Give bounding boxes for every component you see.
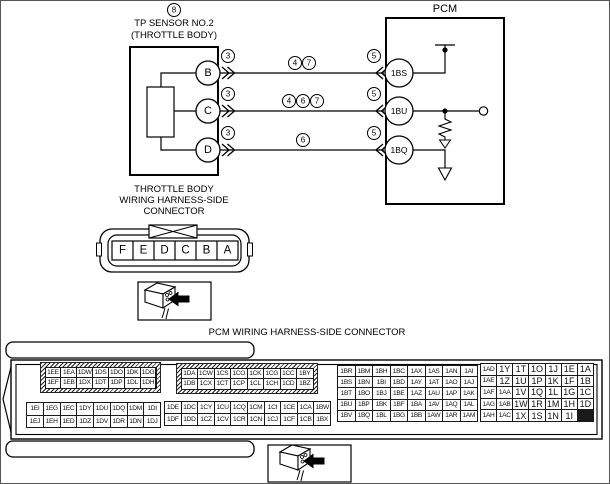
ref-number: 5 (372, 129, 377, 138)
pin-cell-1h: 1H (562, 399, 577, 410)
pin-cell-1cs: 1CS (215, 369, 231, 379)
pin-cell-1bj: 1BJ (373, 388, 390, 398)
pin-cell-1by: 1BY (297, 369, 313, 379)
pin-cell-1t: 1T (513, 364, 528, 375)
pin-cell-1w: 1W (513, 399, 528, 410)
pin-cell-1ax: 1AX (408, 366, 425, 376)
pcm-connector-bottom-bar (6, 441, 254, 457)
pin-cell-1bm: 1BM (356, 366, 373, 376)
pin-cell-1dg: 1DG (141, 368, 156, 378)
pin-cell-1f: 1F (562, 376, 577, 387)
pin-cell-1dk: 1DK (125, 368, 140, 378)
pin-cell-1di: 1DI (144, 403, 160, 415)
pin-cell-1l: 1L (546, 387, 561, 398)
pin-cell-1ct: 1CT (215, 379, 231, 389)
pin-cell-1ea: 1EA (61, 368, 76, 378)
pin-block-hatched-2: 1DA1CW1CS1CO1CK1CG1CC1BY1DB1CX1CT1CP1CL1… (176, 363, 318, 394)
pin-cell-1an: 1AN (443, 366, 460, 376)
pin-cell-1at: 1AT (426, 377, 443, 387)
pin-cell-1ee: 1EE (46, 368, 61, 378)
pin-cell-1dl: 1DL (125, 378, 140, 388)
pin-cell-1cl: 1CL (248, 379, 264, 389)
pin-cell-1bc: 1BC (391, 366, 408, 376)
pcm-connector-left-wedge (3, 367, 11, 432)
pin-cell-1aa: 1AA (497, 387, 512, 398)
pin-cell-1z: 1Z (497, 376, 512, 387)
pin-cell-1cb: 1CB (298, 414, 314, 425)
pcm-connector-top-bar (6, 342, 254, 358)
pin-cell-1ag: 1AG (481, 399, 496, 410)
pin-cell-1x: 1X (513, 410, 528, 421)
pin-cell-1ak: 1AK (461, 388, 478, 398)
pin-cell-1dt: 1DT (93, 378, 108, 388)
pin-cell-1aw: 1AW (426, 411, 443, 421)
pin-cell-1bw: 1BW (314, 402, 330, 413)
pin-cell-1k: 1K (546, 376, 561, 387)
throttle-pin-c: C (181, 245, 189, 257)
pin-cell-1ch: 1CH (264, 379, 280, 389)
pin-cell-1g: 1G (562, 387, 577, 398)
throttle-pin-b: B (203, 245, 211, 257)
pin-cell-1bp: 1BP (356, 400, 373, 410)
throttle-pin-f: F (119, 245, 126, 257)
pin-cell-1dn: 1DN (128, 416, 144, 428)
pin-cell-1bn: 1BN (356, 377, 373, 387)
pin-cell-1ed: 1ED (61, 416, 77, 428)
throttle-pin-d: D (160, 245, 168, 257)
terminal-1bu-label: 1BU (391, 106, 408, 116)
pin-cell-1cj: 1CJ (265, 414, 281, 425)
pin-cell-1v: 1V (513, 387, 528, 398)
power-node-icon (442, 47, 447, 52)
pin-cell-1ef: 1EF (46, 378, 61, 388)
pin-cell-1cz: 1CZ (198, 414, 214, 425)
ref-number: 3 (226, 52, 231, 61)
pin-cell-1ao: 1AO (443, 377, 460, 387)
pin-cell-1a: 1A (578, 364, 593, 375)
pin-cell-1eg: 1EG (44, 403, 60, 415)
pin-cell-1be: 1BE (391, 388, 408, 398)
pin-cell-1av: 1AV (426, 400, 443, 410)
pin-cell-1bo: 1BO (356, 388, 373, 398)
pin-cell-1dm: 1DM (128, 403, 144, 415)
sensor-title-line1: TP SENSOR NO.2 (134, 18, 214, 29)
pin-cell-1dv: 1DV (94, 416, 110, 428)
terminal-1bs-label: 1BS (391, 68, 407, 78)
pin-cell-1eh: 1EH (44, 416, 60, 428)
terminal-c-label: C (204, 105, 212, 117)
ref-number: 5 (372, 52, 377, 61)
pin-cell-1bv: 1BV (338, 411, 355, 421)
pin-cell-1aq: 1AQ (443, 400, 460, 410)
pin-cell-1df: 1DF (165, 414, 181, 425)
throttle-connector-label1: THROTTLE BODY (134, 184, 214, 195)
sensor-ref-number: 8 (172, 6, 177, 15)
throttle-connector-label2: WIRING HARNESS-SIDE (119, 195, 228, 206)
pin-cell-1ej: 1EJ (27, 416, 43, 428)
pin-cell-1e: 1E (562, 364, 577, 375)
pcm-output-circle-icon (479, 107, 487, 115)
pin-cell-1au: 1AU (426, 388, 443, 398)
pin-cell-1b: 1B (578, 376, 593, 387)
pin-cell-1bh: 1BH (373, 366, 390, 376)
pin-cell-1y: 1Y (497, 364, 512, 375)
pin-cell-1bk: 1BK (373, 400, 390, 410)
pin-cell-1de: 1DE (165, 402, 181, 413)
ref-number: 4 (287, 97, 292, 106)
pin-cell-1al: 1AL (461, 400, 478, 410)
pin-cell-1bg: 1BG (391, 411, 408, 421)
connector-side-tab-right (248, 243, 253, 256)
pin-grid: 1EE1EA1DW1DS1DO1DK1DG1EF1EB1DX1DT1DP1DL1… (45, 367, 157, 389)
pin-cell-1ca: 1CA (298, 402, 314, 413)
pin-cell-1du: 1DU (94, 403, 110, 415)
pin-cell-1ai: 1AI (461, 366, 478, 376)
pin-cell-1db: 1DB (182, 379, 198, 389)
pin-cell-1dc: 1DC (182, 402, 198, 413)
pin-cell-1dy: 1DY (77, 403, 93, 415)
pin-cell-1ck: 1CK (248, 369, 264, 379)
pin-cell-1ds: 1DS (93, 368, 108, 378)
pin-cell-1cn: 1CN (248, 414, 264, 425)
pin-cell-1dj: 1DJ (144, 416, 160, 428)
pin-cell-1c: 1C (578, 387, 593, 398)
pin-cell-1s: 1S (529, 410, 544, 421)
pin-cell-1d: 1D (578, 399, 593, 410)
pin-cell-1ei: 1EI (27, 403, 43, 415)
ref-number: 4 (293, 59, 298, 68)
pin-cell-1ec: 1EC (61, 403, 77, 415)
pin-cell-1bz: 1BZ (297, 379, 313, 389)
pin-cell-1bs: 1BS (338, 377, 355, 387)
pin-cell-1dw: 1DW (77, 368, 92, 378)
pin-cell-1ab: 1AB (497, 399, 512, 410)
wiring-diagram-page: 8 TP SENSOR NO.2 (THROTTLE BODY) PCM (0, 0, 610, 484)
throttle-connector-label3: CONNECTOR (143, 206, 204, 217)
pin-cell-1ci: 1CI (265, 402, 281, 413)
pin-cell-1u: 1U (513, 376, 528, 387)
pin-cell-1cp: 1CP (231, 379, 247, 389)
pin-cell-1cm: 1CM (248, 402, 264, 413)
pin-cell-1cq: 1CQ (231, 402, 247, 413)
pin-cell-1az: 1AZ (408, 388, 425, 398)
ref-number: 7 (315, 97, 320, 106)
pin-cell-1q: 1Q (529, 387, 544, 398)
pin-cell-1dh: 1DH (141, 378, 156, 388)
pin-cell-1da: 1DA (182, 369, 198, 379)
ref-number: 3 (226, 90, 231, 99)
pin-cell-1bu: 1BU (338, 400, 355, 410)
pin-cell-1br: 1BR (338, 366, 355, 376)
pin-block-hatched-1: 1EE1EA1DW1DS1DO1DK1DG1EF1EB1DX1DT1DP1DL1… (40, 362, 161, 393)
pin-cell-1dx: 1DX (77, 378, 92, 388)
pin-cell-1cg: 1CG (264, 369, 280, 379)
connector-side-tab-left (97, 243, 102, 256)
pin-cell-1eb: 1EB (61, 378, 76, 388)
ref-number: 7 (307, 59, 312, 68)
sensor-title-line2: (THROTTLE BODY) (131, 30, 217, 41)
pcm-title: PCM (433, 3, 457, 15)
pin-grid: 1DA1CW1CS1CO1CK1CG1CC1BY1DB1CX1CT1CP1CL1… (181, 368, 314, 390)
pin-cell-1bt: 1BT (338, 388, 355, 398)
pin-cell-1ay: 1AY (408, 377, 425, 387)
pin-cell-1cc: 1CC (281, 369, 297, 379)
pin-block-5: 1BR1BM1BH1BC1AX1AS1AN1AI1BS1BN1BI1BD1AY1… (337, 365, 478, 422)
terminal-b-label: B (204, 67, 211, 79)
pin-cell-1ba: 1BA (408, 400, 425, 410)
pin-cell-1cw: 1CW (198, 369, 214, 379)
pin-cell-1bd: 1BD (391, 377, 408, 387)
pin-cell-1r: 1R (529, 399, 544, 410)
ref-number: 6 (301, 136, 306, 145)
pin-cell-1dd: 1DD (182, 414, 198, 425)
pin-cell-1p: 1P (529, 376, 544, 387)
throttle-pin-a: A (224, 245, 232, 257)
pin-cell-1bf: 1BF (391, 400, 408, 410)
pin-cell-1cd: 1CD (281, 379, 297, 389)
sensor-element (147, 87, 174, 137)
pin-cell-1cf: 1CF (281, 414, 297, 425)
pin-cell-1dz: 1DZ (77, 416, 93, 428)
pin-cell-1i: 1I (562, 410, 577, 421)
pin-cell-1ac: 1AC (497, 410, 512, 421)
pin-block-3: 1EI1EG1EC1DY1DU1DQ1DM1DI1EJ1EH1ED1DZ1DV1… (26, 402, 161, 428)
pin-cell-1j: 1J (546, 364, 561, 375)
pin-cell-1ce: 1CE (281, 402, 297, 413)
pin-cell-1cr: 1CR (231, 414, 247, 425)
pcm-connector-title: PCM WIRING HARNESS-SIDE CONNECTOR (209, 327, 406, 338)
pin-cell-1cv: 1CV (215, 414, 231, 425)
terminal-d-label: D (204, 144, 212, 156)
pin-block-6: 1AD1Y1T1O1J1E1A1AE1Z1U1P1K1F1B1AF1AA1V1Q… (480, 363, 594, 422)
pin-cell-1ae: 1AE (481, 376, 496, 387)
pin-cell-1ap: 1AP (443, 388, 460, 398)
terminal-1bq-label: 1BQ (390, 145, 407, 155)
pin-cell-1bb: 1BB (408, 411, 425, 421)
pin-cell-1ah: 1AH (481, 410, 496, 421)
pin-cell-1cx: 1CX (198, 379, 214, 389)
ref-number: 3 (226, 129, 231, 138)
throttle-pin-e: E (140, 245, 148, 257)
pin-cell-1bi: 1BI (373, 377, 390, 387)
pin-cell-1cy: 1CY (198, 402, 214, 413)
pin-cell-1as: 1AS (426, 366, 443, 376)
pin-cell-1ad: 1AD (481, 364, 496, 375)
pin-cell-1aj: 1AJ (461, 377, 478, 387)
pin-cell-1dq: 1DQ (111, 403, 127, 415)
pin-cell-1af: 1AF (481, 387, 496, 398)
pin-cell-1dr: 1DR (111, 416, 127, 428)
pin-cell-1co: 1CO (231, 369, 247, 379)
ref-number: 6 (301, 97, 306, 106)
pin-cell-1m: 1M (546, 399, 561, 410)
pin-cell-1do: 1DO (109, 368, 124, 378)
pin-cell-1n: 1N (546, 410, 561, 421)
pin-cell-1bq: 1BQ (356, 411, 373, 421)
pin-cell-1ar: 1AR (443, 411, 460, 421)
ref-number: 5 (372, 90, 377, 99)
pin-cell-1dp: 1DP (109, 378, 124, 388)
pin-cell-1bl: 1BL (373, 411, 390, 421)
pin-block-4: 1DE1DC1CY1CU1CQ1CM1CI1CE1CA1BW1DF1DD1CZ1… (164, 401, 331, 426)
pin-cell-1bx: 1BX (314, 414, 330, 425)
pin-cell-1am: 1AM (461, 411, 478, 421)
pin-cell-1o: 1O (529, 364, 544, 375)
pin-cell-1cu: 1CU (215, 402, 231, 413)
